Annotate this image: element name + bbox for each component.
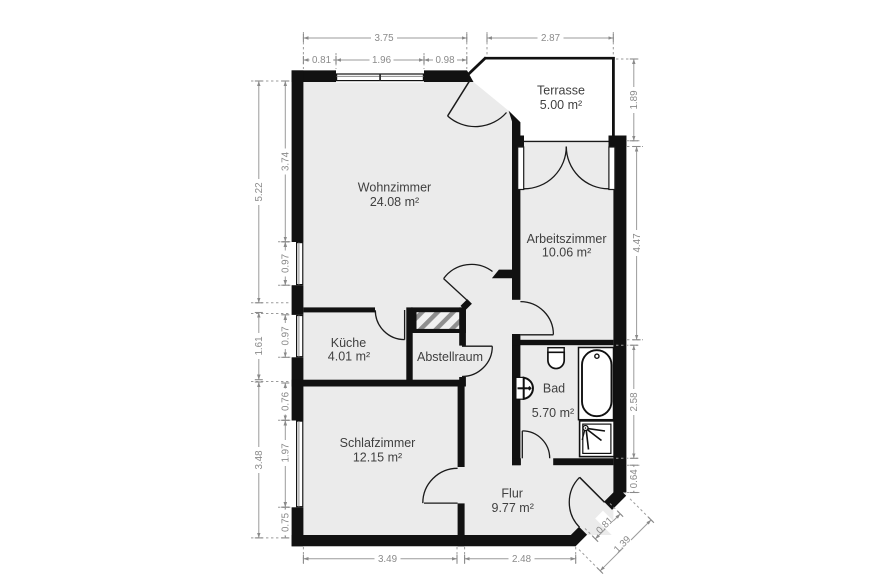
svg-text:Arbeitszimmer: Arbeitszimmer [527,232,607,246]
svg-text:Küche: Küche [331,336,366,350]
svg-text:3.49: 3.49 [378,554,397,565]
svg-text:5.00 m²: 5.00 m² [540,98,582,112]
svg-text:0.76: 0.76 [281,391,292,411]
svg-text:3.48: 3.48 [254,450,265,470]
svg-text:9.77 m²: 9.77 m² [492,501,534,515]
svg-text:Schlafzimmer: Schlafzimmer [340,436,416,450]
svg-text:3.75: 3.75 [374,33,394,44]
svg-text:5.70 m²: 5.70 m² [532,406,574,420]
svg-text:0.81: 0.81 [312,55,331,66]
svg-text:Terrasse: Terrasse [537,84,585,98]
svg-text:1.97: 1.97 [281,443,292,462]
svg-text:0.97: 0.97 [281,254,292,273]
svg-text:2.48: 2.48 [512,554,532,565]
svg-text:12.15 m²: 12.15 m² [353,451,402,465]
svg-text:0.64: 0.64 [629,469,640,489]
svg-text:0.75: 0.75 [281,512,292,532]
svg-text:0.98: 0.98 [435,55,455,66]
svg-text:4.47: 4.47 [632,233,643,252]
svg-text:0.97: 0.97 [281,326,292,345]
svg-text:1.96: 1.96 [372,55,392,66]
svg-text:1.61: 1.61 [254,336,265,355]
svg-text:1.89: 1.89 [629,90,640,109]
svg-text:Abstellraum: Abstellraum [417,350,483,364]
svg-text:Bad: Bad [543,382,565,396]
svg-text:5.22: 5.22 [254,182,265,201]
svg-text:Flur: Flur [501,487,523,501]
svg-text:3.74: 3.74 [281,151,292,171]
svg-text:2.87: 2.87 [541,33,560,44]
svg-text:Wohnzimmer: Wohnzimmer [358,181,431,195]
svg-text:4.01 m²: 4.01 m² [328,350,370,364]
svg-text:24.08 m²: 24.08 m² [370,195,419,209]
svg-text:2.58: 2.58 [629,392,640,412]
svg-text:10.06 m²: 10.06 m² [542,246,591,260]
